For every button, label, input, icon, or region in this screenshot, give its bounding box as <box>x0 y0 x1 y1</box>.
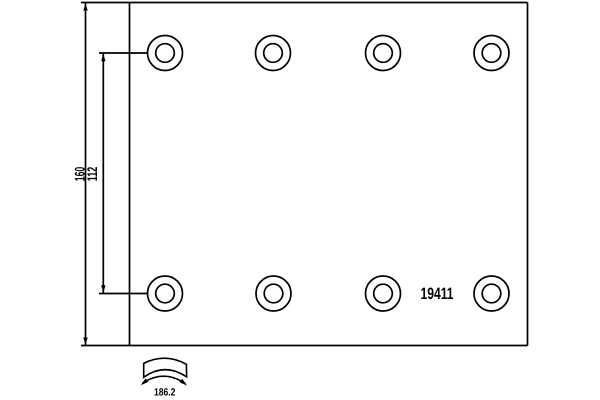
svg-text:186.2: 186.2 <box>154 387 176 399</box>
svg-text:19411: 19411 <box>421 285 454 303</box>
svg-text:112: 112 <box>84 167 100 182</box>
